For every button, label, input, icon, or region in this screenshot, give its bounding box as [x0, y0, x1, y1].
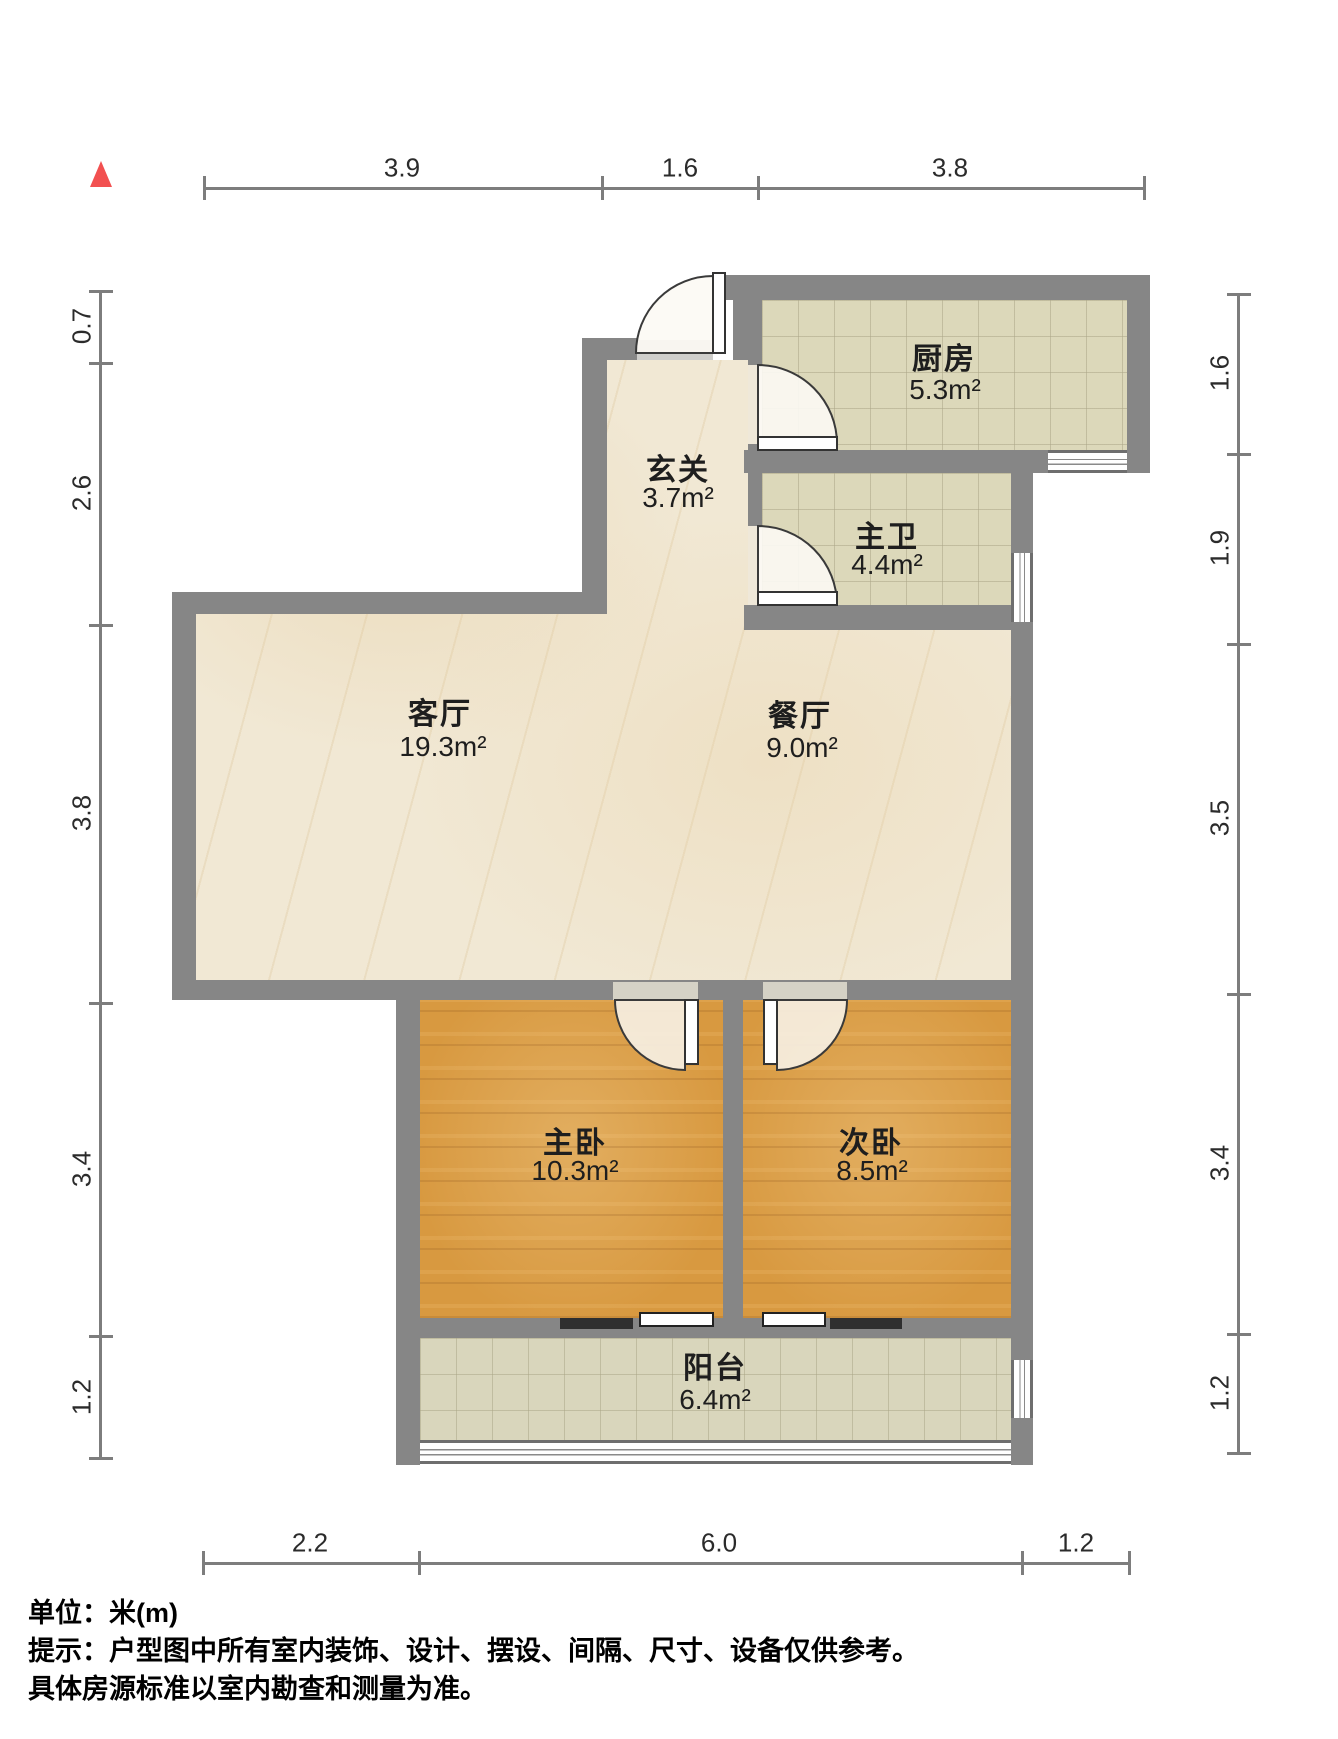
second-bedroom-slider-panel-light: [763, 1313, 825, 1326]
master-bedroom-door-swing: [615, 1000, 685, 1070]
dim-bottom-3: 1.2: [1058, 1528, 1094, 1559]
dim-right-4: 3.4: [1205, 1145, 1236, 1181]
master-bedroom-door-leaf: [685, 1000, 698, 1064]
doors-overlay: [0, 0, 1338, 1739]
dim-line-top: [203, 187, 1146, 190]
room-area-master-bath: 4.4m²: [851, 549, 923, 581]
dim-left-1: 0.7: [67, 308, 98, 344]
dim-tick: [89, 362, 113, 365]
kitchen-door-swing: [758, 365, 837, 444]
dim-tick: [1143, 176, 1146, 200]
dim-right-2: 1.9: [1205, 530, 1236, 566]
footer-unit-line: 单位：米(m): [28, 1594, 919, 1632]
footer-disclaimer: 单位：米(m) 提示：户型图中所有室内装饰、设计、摆设、间隔、尺寸、设备仅供参考…: [28, 1594, 919, 1708]
dim-right-3: 3.5: [1205, 800, 1236, 836]
kitchen-door-leaf: [758, 437, 837, 450]
dim-tick: [89, 290, 113, 293]
room-area-kitchen: 5.3m²: [909, 374, 981, 406]
dim-tick: [89, 624, 113, 627]
room-label-balcony: 阳台: [683, 1343, 747, 1387]
dim-tick: [202, 1551, 205, 1575]
entry-door-swing: [636, 276, 713, 353]
master-bath-door-leaf: [758, 592, 837, 605]
dim-tick: [1227, 1333, 1251, 1336]
dim-tick: [1227, 1452, 1251, 1455]
dim-left-4: 3.4: [67, 1151, 98, 1187]
dim-tick: [757, 176, 760, 200]
dim-line-bottom: [202, 1562, 1131, 1565]
entry-door-leaf: [713, 273, 725, 353]
dim-left-2: 2.6: [67, 475, 98, 511]
dim-left-5: 1.2: [67, 1379, 98, 1415]
master-bedroom-slider-panel-dark: [560, 1318, 633, 1329]
second-bedroom-door-swing: [777, 1000, 847, 1070]
room-label-dining-room: 餐厅: [768, 691, 832, 735]
footer-tip-line: 提示：户型图中所有室内装饰、设计、摆设、间隔、尺寸、设备仅供参考。: [28, 1632, 919, 1670]
dim-tick: [89, 1002, 113, 1005]
dim-left-3: 3.8: [67, 795, 98, 831]
dim-tick: [1227, 643, 1251, 646]
room-label-living-room: 客厅: [408, 689, 472, 733]
dim-bottom-1: 2.2: [292, 1528, 328, 1559]
room-area-balcony: 6.4m²: [679, 1384, 751, 1416]
master-bedroom-slider-panel-light: [640, 1313, 713, 1326]
dim-top-1: 3.9: [384, 153, 420, 184]
dim-bottom-2: 6.0: [701, 1528, 737, 1559]
dim-right-5: 1.2: [1205, 1375, 1236, 1411]
floorplan-page: 玄关 3.7m² 厨房 5.3m² 主卫 4.4m² 客厅 19.3m² 餐厅 …: [0, 0, 1338, 1739]
second-bedroom-slider-panel-dark: [830, 1318, 902, 1329]
room-area-master-bedroom: 10.3m²: [531, 1155, 618, 1187]
dim-tick: [89, 1335, 113, 1338]
dim-tick: [418, 1551, 421, 1575]
room-area-living-room: 19.3m²: [399, 731, 486, 763]
room-area-entry: 3.7m²: [642, 482, 714, 514]
dim-tick: [1227, 453, 1251, 456]
dim-tick: [1128, 1551, 1131, 1575]
dim-line-right: [1237, 293, 1240, 1455]
dim-tick: [1227, 993, 1251, 996]
dim-line-left: [99, 290, 102, 1460]
room-area-dining-room: 9.0m²: [766, 732, 838, 764]
footer-note-line: 具体房源标准以室内勘查和测量为准。: [28, 1670, 919, 1708]
dim-tick: [89, 1457, 113, 1460]
dim-tick: [1021, 1551, 1024, 1575]
dim-tick: [1227, 293, 1251, 296]
room-label-kitchen: 厨房: [912, 334, 976, 378]
dim-top-3: 3.8: [932, 153, 968, 184]
dim-right-1: 1.6: [1205, 355, 1236, 391]
dim-top-2: 1.6: [662, 153, 698, 184]
dim-tick: [203, 176, 206, 200]
room-area-second-bedroom: 8.5m²: [836, 1155, 908, 1187]
second-bedroom-door-leaf: [764, 1000, 777, 1064]
dim-tick: [601, 176, 604, 200]
